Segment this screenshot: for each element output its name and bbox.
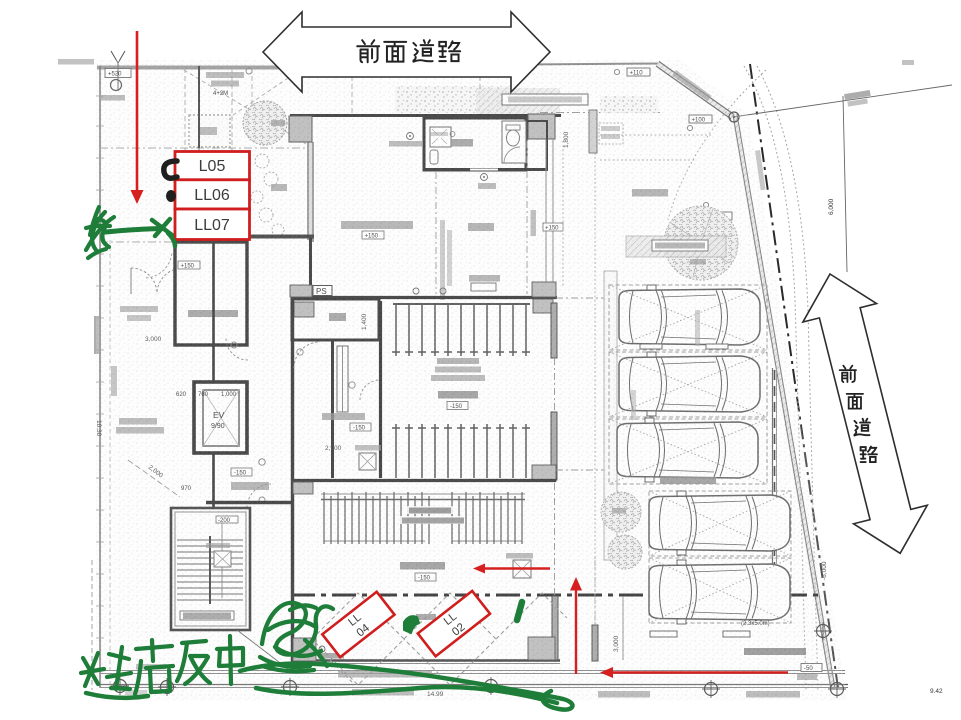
- svg-text:L05: L05: [199, 158, 226, 175]
- svg-text:LL07: LL07: [194, 217, 230, 234]
- svg-text:6,000: 6,000: [828, 198, 835, 215]
- svg-text:9.42: 9.42: [930, 688, 943, 695]
- svg-text:LL06: LL06: [194, 187, 230, 204]
